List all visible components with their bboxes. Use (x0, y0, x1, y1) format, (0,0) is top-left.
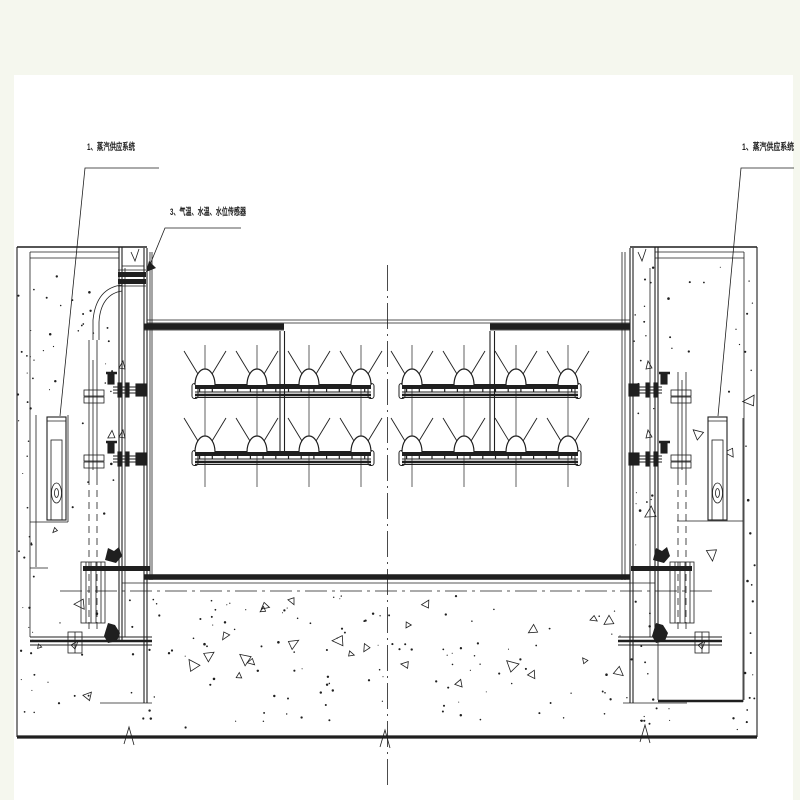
label-steam-supply-right: 1、蒸汽供应系统 (742, 141, 794, 153)
label-sensors: 3、气温、水温、水位传感器 (170, 206, 246, 218)
drawing-canvas: 1、蒸汽供应系统 3、气温、水温、水位传感器 1、蒸汽供应系统 (0, 0, 800, 800)
label-steam-supply-left: 1、蒸汽供应系统 (87, 141, 135, 153)
hydraulic-cylinder-right (708, 417, 727, 520)
paper-sheet (14, 75, 793, 800)
hydraulic-cylinder-left (47, 417, 66, 520)
